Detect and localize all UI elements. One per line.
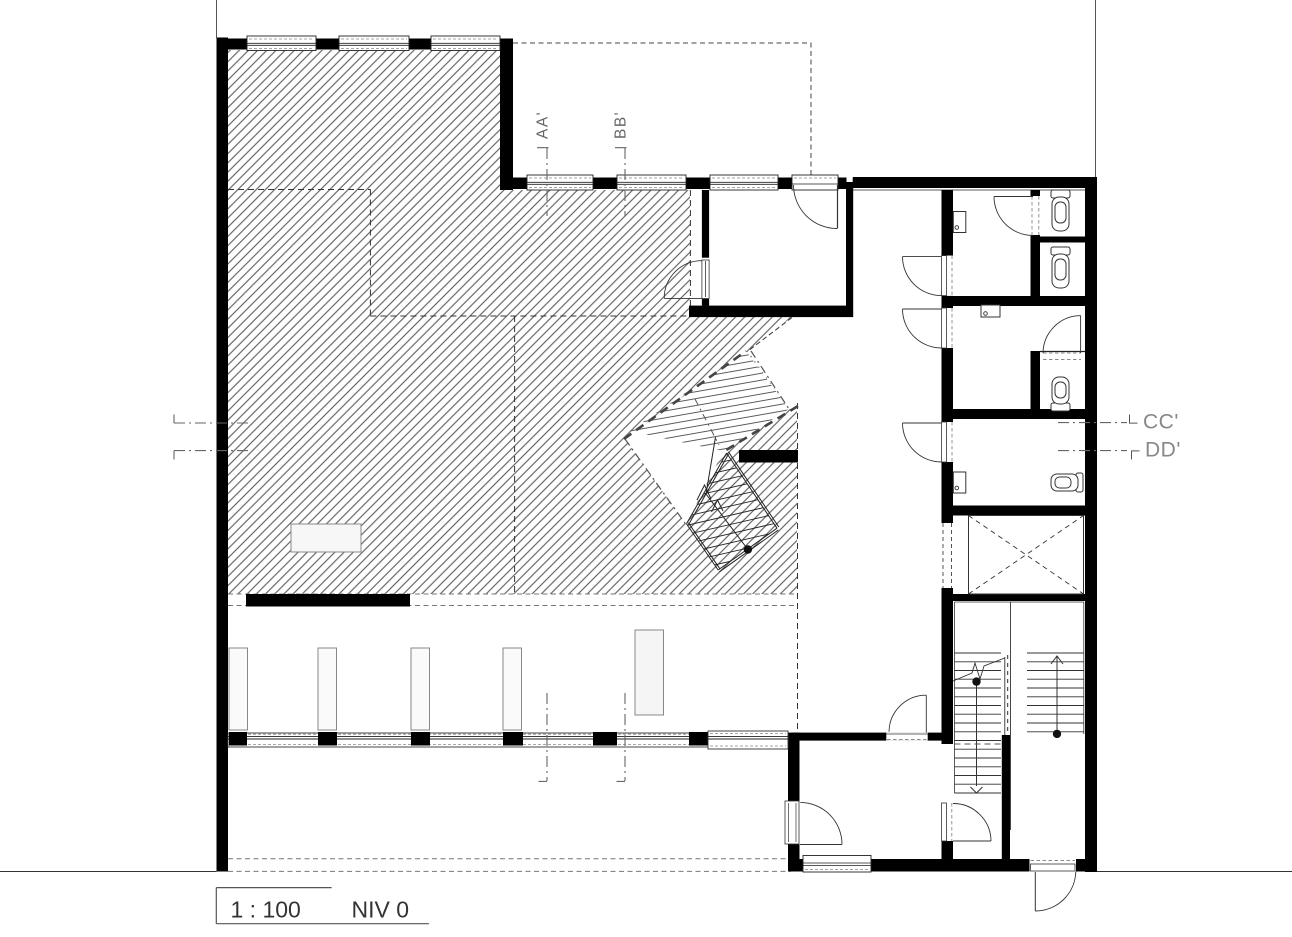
svg-text:NIV 0: NIV 0 [352,897,410,923]
svg-text:CC': CC' [1143,411,1179,434]
svg-text:1 : 100: 1 : 100 [231,897,301,923]
svg-text:BB': BB' [613,111,630,139]
svg-text:AA': AA' [535,111,552,139]
svg-text:DD': DD' [1145,439,1181,462]
